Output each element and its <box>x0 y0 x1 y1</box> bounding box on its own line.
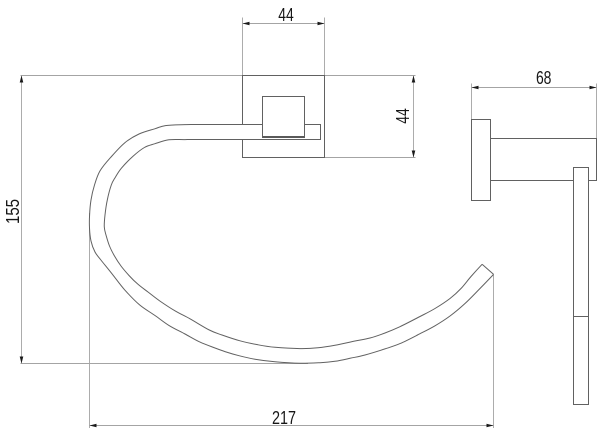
svg-text:68: 68 <box>536 68 552 88</box>
svg-text:217: 217 <box>272 408 296 428</box>
svg-text:155: 155 <box>3 199 23 224</box>
svg-text:44: 44 <box>393 108 413 124</box>
svg-text:44: 44 <box>278 5 294 25</box>
